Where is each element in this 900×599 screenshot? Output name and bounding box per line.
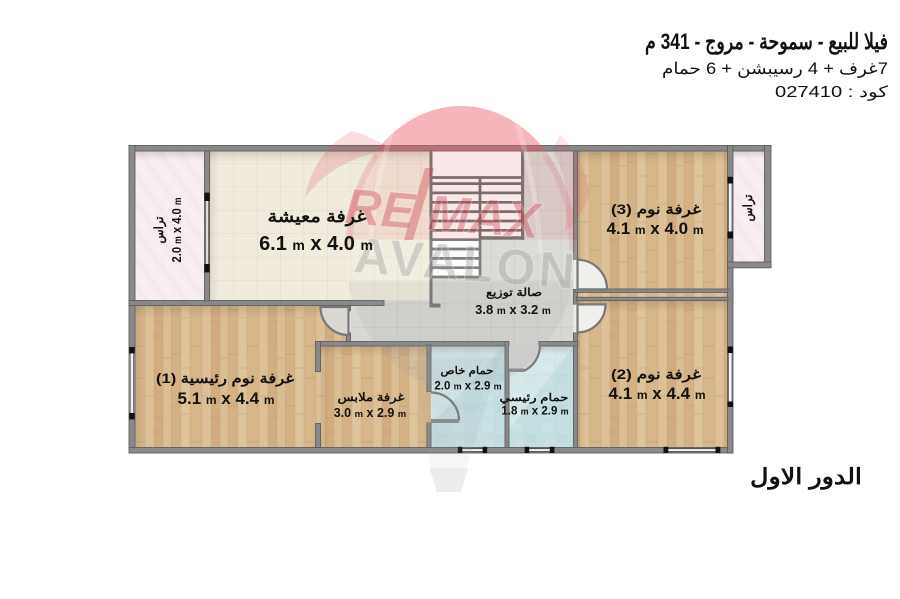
- svg-text:2.0 m x 4.0 m: 2.0 m x 4.0 m: [169, 197, 184, 262]
- svg-text:2.0 m x 2.9 m: 2.0 m x 2.9 m: [434, 381, 501, 393]
- svg-text:غرفة ملابس: غرفة ملابس: [338, 391, 406, 405]
- svg-text:3.8 m x 3.2 m: 3.8 m x 3.2 m: [475, 302, 551, 317]
- svg-text:1.8 m x 2.9 m: 1.8 m x 2.9 m: [501, 406, 568, 418]
- svg-text:حمام خاص: حمام خاص: [441, 365, 495, 377]
- svg-text:4.1 m x 4.0 m: 4.1 m x 4.0 m: [607, 219, 704, 238]
- svg-text:4.1 m x 4.4 m: 4.1 m x 4.4 m: [609, 384, 706, 403]
- svg-text:6.1 m x 4.0 m: 6.1 m x 4.0 m: [259, 233, 373, 255]
- svg-text:غرفة نوم رئيسية (1): غرفة نوم رئيسية (1): [156, 370, 295, 387]
- svg-text:3.0 m x 2.9 m: 3.0 m x 2.9 m: [334, 406, 407, 420]
- svg-text:غرفة نوم (3): غرفة نوم (3): [611, 201, 702, 218]
- svg-text:صالة توزيع: صالة توزيع: [486, 287, 542, 299]
- svg-text:الدور الاول: الدور الاول: [750, 464, 862, 490]
- svg-text:7غرف + 4 رسيبشن + 6 حمام: 7غرف + 4 رسيبشن + 6 حمام: [662, 60, 888, 79]
- svg-text:تراس: تراس: [152, 216, 167, 243]
- svg-text:5.1 m x 4.4 m: 5.1 m x 4.4 m: [178, 389, 275, 408]
- svg-text:تراس: تراس: [741, 194, 756, 221]
- svg-text:كود : 027410: كود : 027410: [775, 84, 889, 101]
- svg-text:فيلا للبيع - سموحة - مروج - 34: فيلا للبيع - سموحة - مروج - 341 م: [645, 29, 888, 55]
- svg-text:غرفة نوم (2): غرفة نوم (2): [611, 366, 702, 383]
- svg-text:حمام رئيسي: حمام رئيسي: [500, 392, 570, 405]
- svg-text:غرفة معيشة: غرفة معيشة: [268, 207, 367, 227]
